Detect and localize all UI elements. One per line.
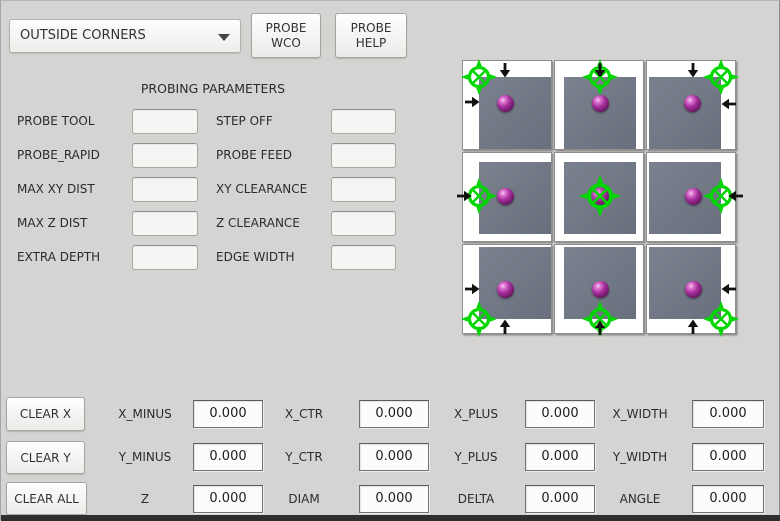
- probe-help-label-line1: PROBE: [336, 21, 406, 36]
- probe-direction-arrow-left: [721, 96, 737, 112]
- probe-help-button[interactable]: PROBE HELP: [335, 13, 407, 58]
- probe-tool-input[interactable]: [132, 109, 198, 134]
- crosshair-target-icon: [460, 58, 498, 96]
- probe-cell-center[interactable]: [554, 152, 644, 242]
- x-minus-value: 0.000: [193, 400, 263, 428]
- xy-clearance-label: XY CLEARANCE: [216, 177, 307, 202]
- probe-direction-arrow-down: [592, 62, 608, 78]
- probe-direction-arrow-up: [497, 319, 513, 335]
- probe-direction-arrow-up: [685, 319, 701, 335]
- probe-feed-input[interactable]: [331, 143, 396, 168]
- z-label: Z: [105, 485, 185, 513]
- probe-wco-button[interactable]: PROBE WCO: [251, 13, 321, 58]
- probe-direction-arrow-down: [497, 62, 513, 78]
- crosshair-target-icon: [702, 300, 740, 338]
- probe-tip-ball: [684, 95, 701, 112]
- y-minus-label: Y_MINUS: [105, 443, 185, 471]
- x-plus-value: 0.000: [525, 400, 595, 428]
- z-clearance-label: Z CLEARANCE: [216, 211, 300, 236]
- probe-rapid-input[interactable]: [132, 143, 198, 168]
- crosshair-target-icon: [578, 174, 622, 218]
- probe-cell-top-center[interactable]: [554, 60, 644, 150]
- delta-label: DELTA: [436, 485, 516, 513]
- max-z-dist-input[interactable]: [132, 211, 198, 236]
- crosshair-target-icon: [702, 58, 740, 96]
- angle-value: 0.000: [692, 485, 764, 513]
- probe-tip-ball: [592, 95, 609, 112]
- probe-tip-ball: [497, 95, 514, 112]
- max-z-dist-label: MAX Z DIST: [17, 211, 87, 236]
- x-width-label: X_WIDTH: [599, 400, 681, 428]
- window-bottom-border: [1, 515, 780, 521]
- y-minus-value: 0.000: [193, 443, 263, 471]
- angle-label: ANGLE: [599, 485, 681, 513]
- probe-direction-arrow-left: [728, 188, 744, 204]
- z-value: 0.000: [193, 485, 263, 513]
- probe-rapid-label: PROBE_RAPID: [17, 143, 100, 168]
- probe-cell-top-left[interactable]: [462, 60, 552, 150]
- probe-help-label-line2: HELP: [336, 36, 406, 51]
- probe-screen-window: { "header": { "mode_dropdown": { "value"…: [0, 0, 780, 520]
- x-ctr-value: 0.000: [359, 400, 429, 428]
- probe-position-diagram: [462, 60, 738, 336]
- y-width-label: Y_WIDTH: [599, 443, 681, 471]
- step-off-input[interactable]: [331, 109, 396, 134]
- diam-label: DIAM: [264, 485, 344, 513]
- y-ctr-value: 0.000: [359, 443, 429, 471]
- probe-cell-middle-left[interactable]: [462, 152, 552, 242]
- chevron-down-icon: [218, 34, 230, 41]
- probing-parameters-title: PROBING PARAMETERS: [61, 81, 365, 96]
- probe-tip-ball: [685, 188, 702, 205]
- probe-tool-label: PROBE TOOL: [17, 109, 95, 134]
- crosshair-target-icon: [460, 300, 498, 338]
- probe-tip-ball: [497, 281, 514, 298]
- step-off-label: STEP OFF: [216, 109, 273, 134]
- x-minus-label: X_MINUS: [105, 400, 185, 428]
- probe-wco-label-line1: PROBE: [252, 21, 320, 36]
- probe-mode-value: OUTSIDE CORNERS: [20, 20, 146, 52]
- y-plus-label: Y_PLUS: [436, 443, 516, 471]
- probe-direction-arrow-up: [592, 320, 608, 336]
- y-ctr-label: Y_CTR: [264, 443, 344, 471]
- probe-mode-dropdown[interactable]: OUTSIDE CORNERS: [9, 19, 241, 53]
- max-xy-dist-input[interactable]: [132, 177, 198, 202]
- probe-tip-ball: [685, 281, 702, 298]
- probe-cell-bottom-left[interactable]: [462, 244, 552, 334]
- probe-direction-arrow-left: [721, 281, 737, 297]
- probe-direction-arrow-down: [685, 62, 701, 78]
- probe-feed-label: PROBE FEED: [216, 143, 292, 168]
- z-clearance-input[interactable]: [331, 211, 396, 236]
- edge-width-label: EDGE WIDTH: [216, 245, 295, 270]
- probe-cell-bottom-right[interactable]: [646, 244, 736, 334]
- y-width-value: 0.000: [692, 443, 764, 471]
- x-plus-label: X_PLUS: [436, 400, 516, 428]
- probe-cell-middle-right[interactable]: [646, 152, 736, 242]
- probe-tip-ball: [592, 281, 609, 298]
- y-plus-value: 0.000: [525, 443, 595, 471]
- probe-cell-bottom-center[interactable]: [554, 244, 644, 334]
- probe-tip-ball: [497, 188, 514, 205]
- probe-wco-label-line2: WCO: [252, 36, 320, 51]
- max-xy-dist-label: MAX XY DIST: [17, 177, 95, 202]
- extra-depth-input[interactable]: [132, 245, 198, 270]
- edge-width-input[interactable]: [331, 245, 396, 270]
- probe-direction-arrow-right: [456, 188, 472, 204]
- probe-cell-top-right[interactable]: [646, 60, 736, 150]
- probe-direction-arrow-right: [464, 94, 480, 110]
- x-ctr-label: X_CTR: [264, 400, 344, 428]
- diam-value: 0.000: [359, 485, 429, 513]
- x-width-value: 0.000: [692, 400, 764, 428]
- xy-clearance-input[interactable]: [331, 177, 396, 202]
- delta-value: 0.000: [525, 485, 595, 513]
- extra-depth-label: EXTRA DEPTH: [17, 245, 100, 270]
- probe-direction-arrow-right: [464, 281, 480, 297]
